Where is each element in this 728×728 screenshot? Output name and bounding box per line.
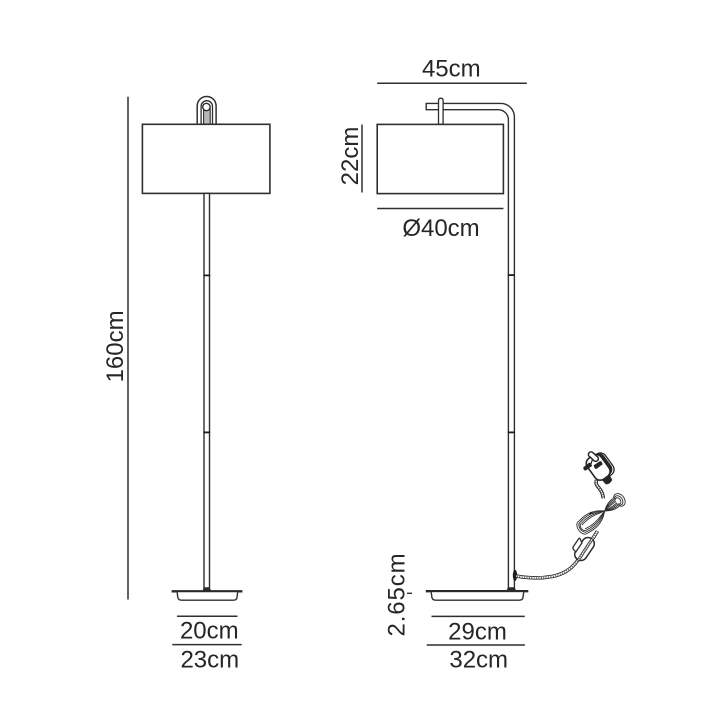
svg-text:20cm: 20cm <box>180 618 239 645</box>
svg-text:22cm: 22cm <box>337 127 364 186</box>
svg-text:160cm: 160cm <box>102 310 129 382</box>
svg-text:29cm: 29cm <box>448 619 507 646</box>
svg-text:32cm: 32cm <box>449 647 508 674</box>
svg-text:23cm: 23cm <box>180 647 239 674</box>
svg-text:2.65cm: 2.65cm <box>383 552 410 636</box>
svg-text:Ø40cm: Ø40cm <box>402 215 479 242</box>
svg-text:45cm: 45cm <box>422 55 481 82</box>
